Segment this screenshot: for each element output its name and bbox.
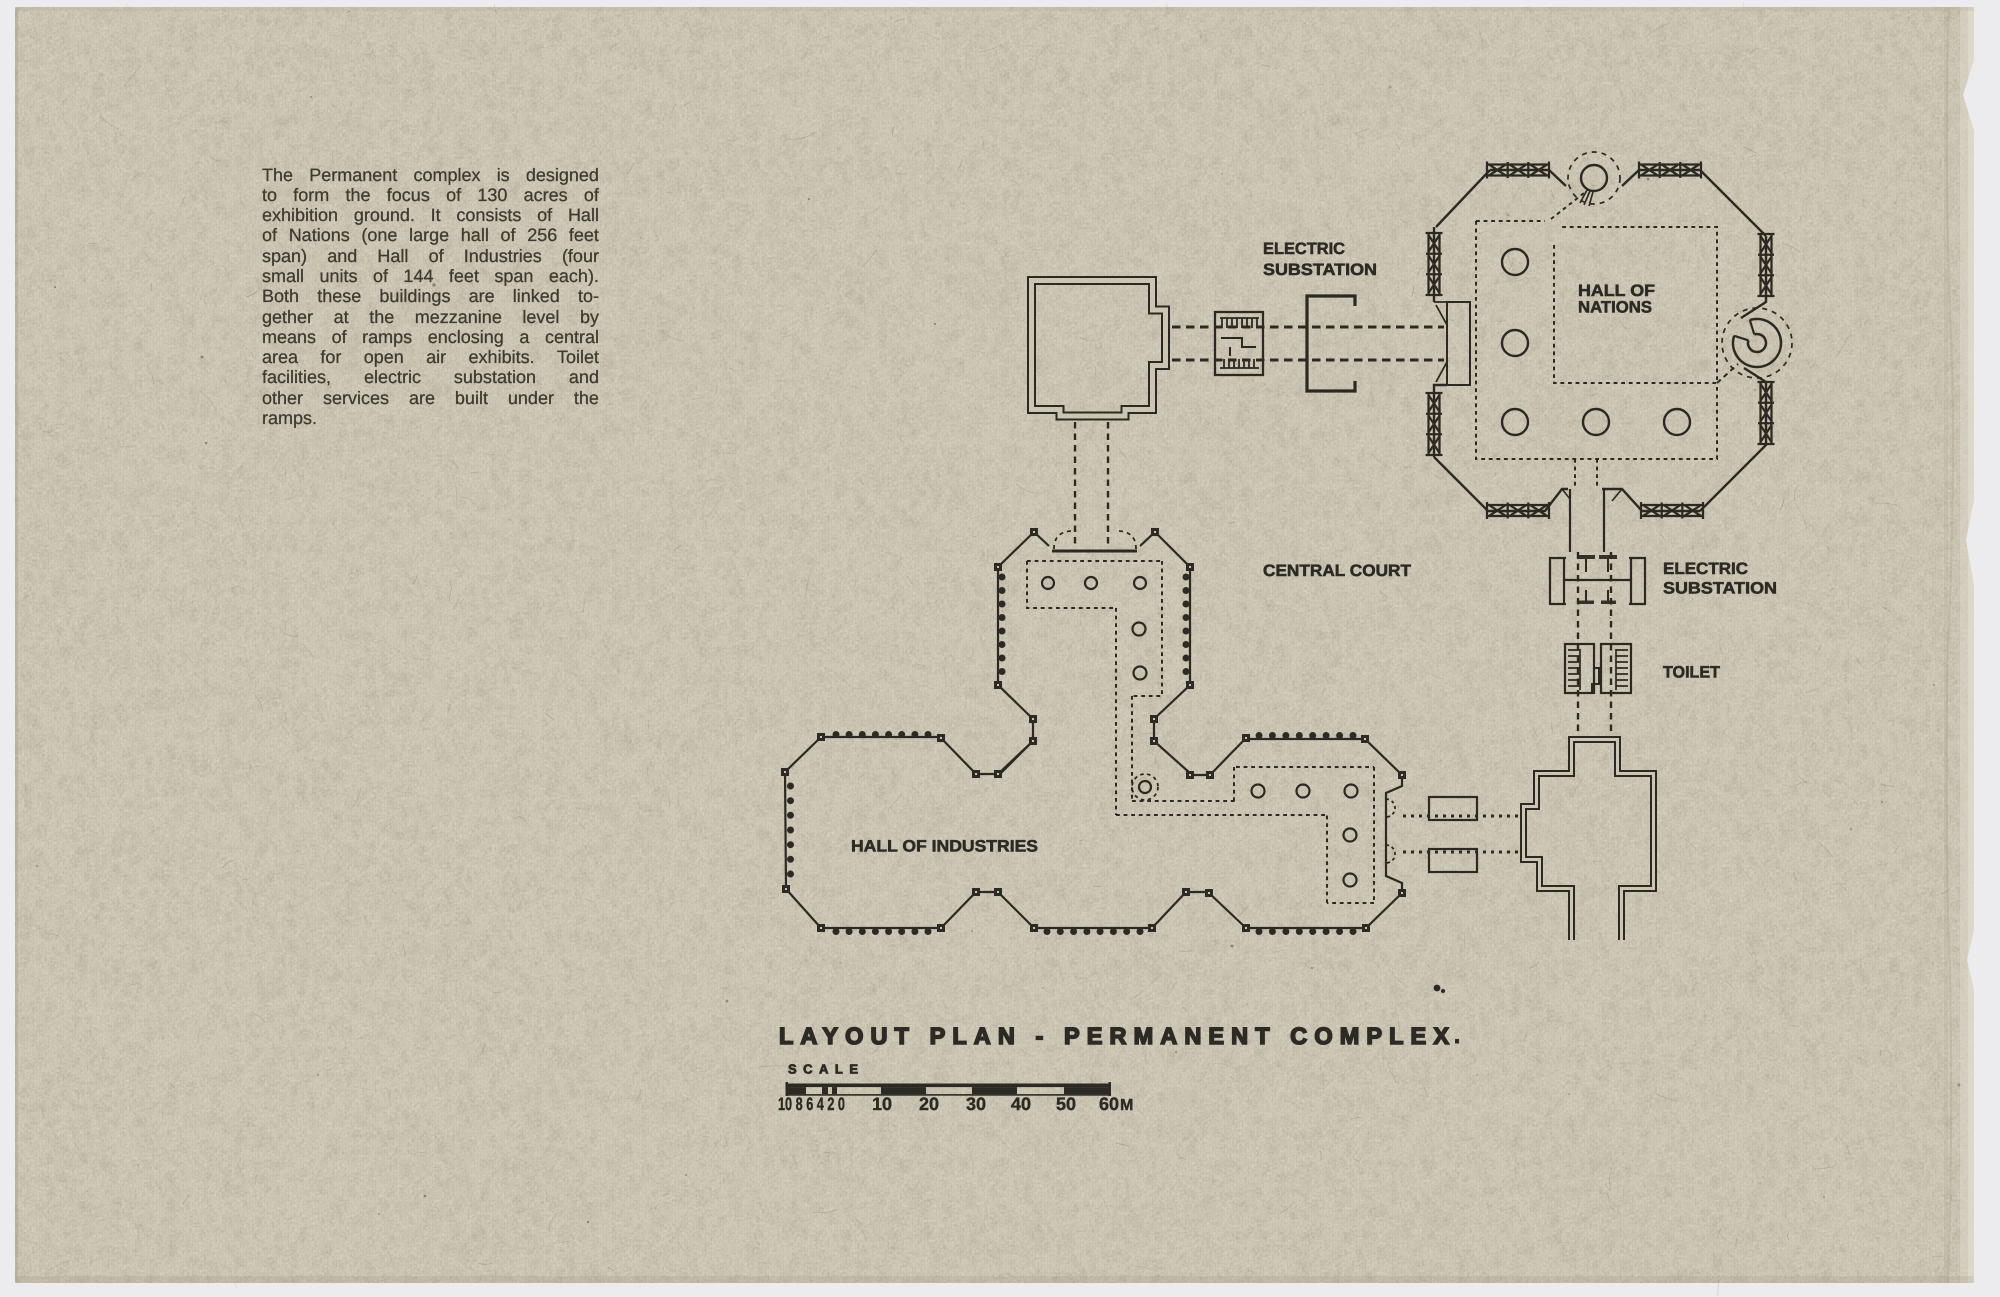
svg-text:SUBSTATION: SUBSTATION [1263,261,1377,279]
svg-text:40: 40 [1011,1094,1031,1114]
svg-text:HALL OF: HALL OF [1578,282,1655,300]
svg-text:10: 10 [872,1094,892,1114]
svg-text:60: 60 [1099,1094,1119,1114]
svg-text:10 8 6 4 2 0: 10 8 6 4 2 0 [778,1094,845,1114]
svg-text:SUBSTATION: SUBSTATION [1663,580,1777,598]
svg-text:LAYOUT PLAN - PERMANENT COMPLE: LAYOUT PLAN - PERMANENT COMPLEX [779,1023,1449,1049]
svg-text:M: M [1120,1097,1133,1114]
svg-text:30: 30 [966,1094,986,1114]
svg-text:20: 20 [919,1094,939,1114]
svg-text:50: 50 [1056,1094,1076,1114]
svg-text:ELECTRIC: ELECTRIC [1263,240,1345,258]
svg-text:ELECTRIC: ELECTRIC [1663,560,1748,578]
svg-text:HALL OF INDUSTRIES: HALL OF INDUSTRIES [851,838,1038,856]
svg-text:TOILET: TOILET [1663,664,1720,682]
svg-text:NATIONS: NATIONS [1578,299,1652,317]
svg-text:CENTRAL COURT: CENTRAL COURT [1263,562,1411,580]
svg-text:SCALE: SCALE [788,1062,858,1077]
